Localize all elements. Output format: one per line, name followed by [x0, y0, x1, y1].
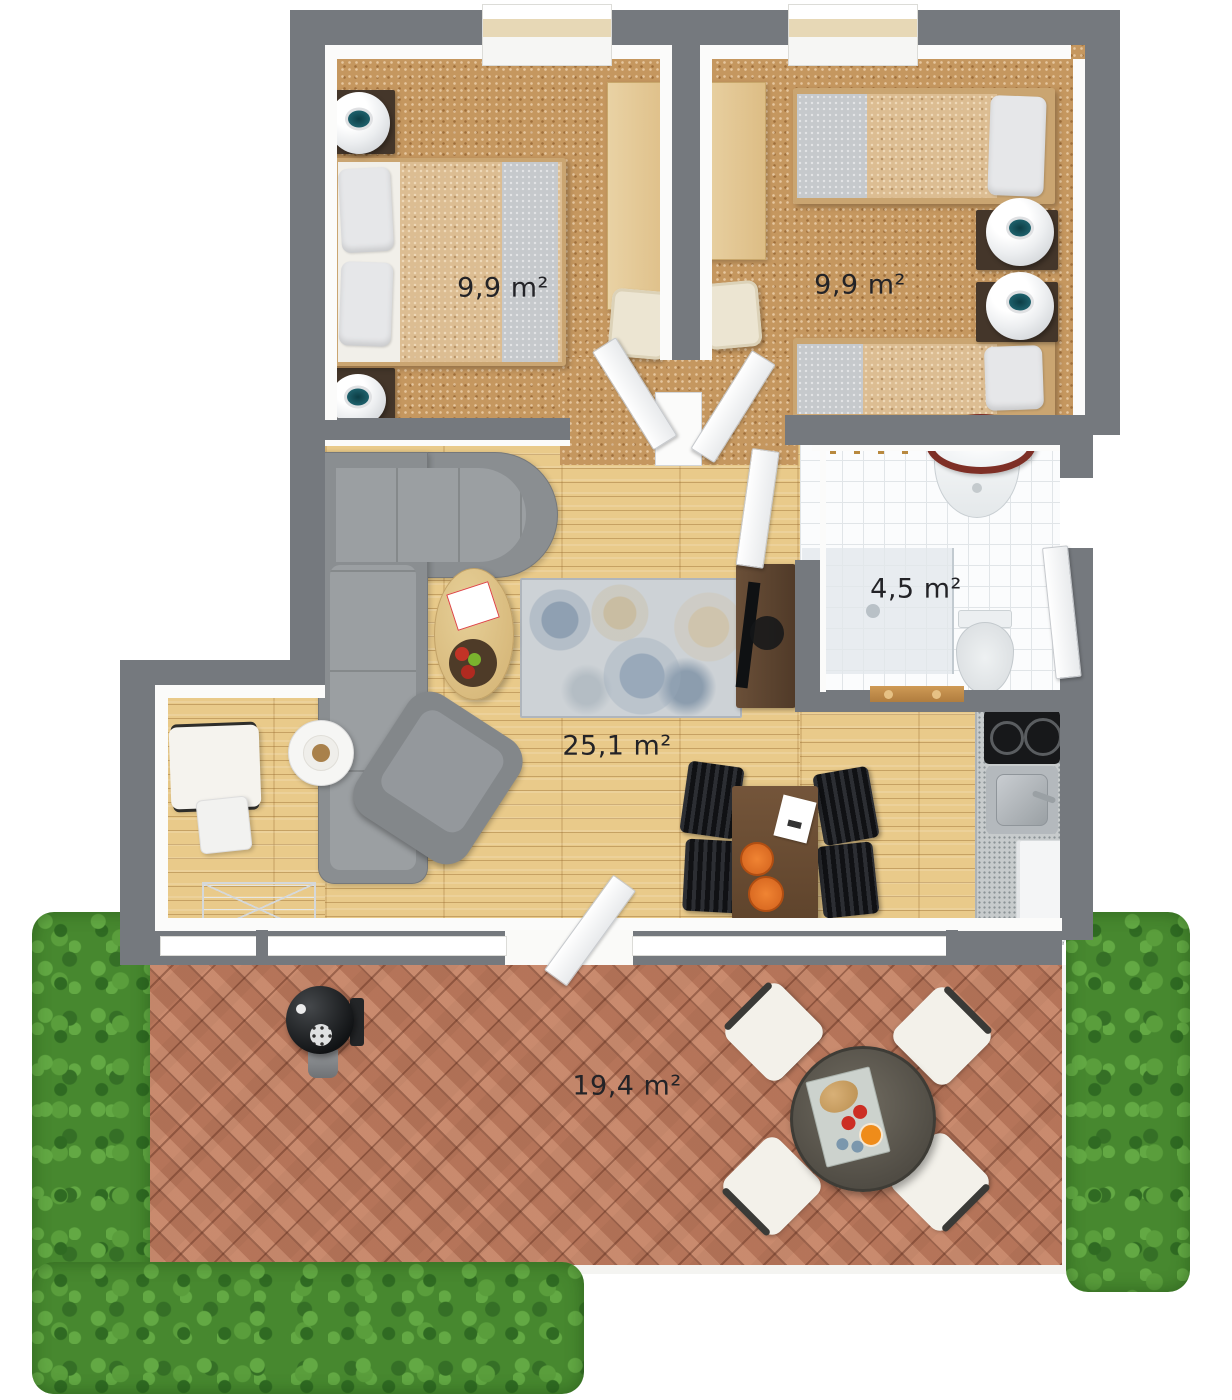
cube-chair — [169, 724, 262, 809]
window — [482, 4, 612, 66]
bbq-grill-base — [308, 1050, 338, 1078]
wall-face — [1073, 59, 1085, 415]
burner — [1024, 718, 1062, 756]
wall-left-upper — [290, 10, 325, 665]
wall-right-mid — [1060, 435, 1093, 478]
wall-top — [290, 10, 1120, 45]
hedge-bottom — [32, 1262, 584, 1394]
bed-runner — [502, 162, 558, 362]
wall-face — [820, 451, 826, 692]
wall-left-wing-side — [120, 660, 155, 935]
wall-face — [325, 59, 337, 420]
bed-runner — [797, 94, 867, 198]
wall-bathroom-left — [795, 560, 820, 692]
floor-plan: 9,9 m² 9,9 m² 4,5 m² 25,1 m² 19,4 m² — [0, 0, 1232, 1400]
area-label-living-room: 25,1 m² — [562, 733, 671, 760]
window-post — [256, 930, 268, 960]
pillow — [338, 167, 394, 254]
lamp-shade-top — [348, 111, 370, 128]
fruit-apple-green — [468, 653, 481, 666]
door-opening — [1060, 478, 1093, 548]
tv-base — [750, 616, 784, 650]
round-table — [288, 720, 354, 786]
window — [788, 4, 918, 66]
bathroom-threshold — [870, 686, 964, 702]
window-post — [946, 930, 958, 960]
lamp-shade-top — [1009, 293, 1031, 310]
window-band — [632, 936, 952, 956]
window-band — [160, 936, 507, 956]
blue-cup — [835, 1137, 850, 1152]
single-bed — [793, 338, 1055, 418]
double-bed — [330, 158, 566, 366]
pillow — [987, 95, 1046, 197]
wall-bedroom-left-bottom — [325, 418, 570, 440]
threshold-knob — [932, 690, 941, 699]
burner — [990, 721, 1024, 755]
fruit-apple-red — [461, 665, 475, 679]
bed-runner — [797, 344, 863, 414]
wall-face — [660, 59, 672, 360]
side-table — [195, 795, 252, 854]
area-label-terrace: 19,4 m² — [572, 1073, 681, 1100]
kitchen-counter — [975, 700, 1064, 945]
area-label-bedroom-left: 9,9 m² — [457, 275, 549, 302]
lamp-shade-top — [1009, 219, 1031, 236]
tv-stand — [736, 564, 796, 708]
pillow — [339, 261, 394, 347]
area-rug — [520, 578, 742, 718]
area-label-bathroom: 4,5 m² — [870, 576, 962, 603]
table-lamp — [986, 198, 1054, 266]
serving-tray — [805, 1066, 890, 1167]
hedge-right — [1066, 912, 1190, 1292]
wall-face — [812, 445, 1060, 451]
wall-face — [155, 685, 168, 930]
wall-face — [700, 59, 712, 360]
pillow — [984, 345, 1044, 411]
table-lamp — [986, 272, 1054, 340]
wall-bedroom-divider — [672, 45, 700, 360]
menu-card — [773, 795, 816, 844]
dining-table — [732, 786, 818, 920]
lamp-shade-top — [347, 388, 369, 405]
bbq-grill-knob — [296, 1004, 306, 1014]
toilet-bowl — [956, 622, 1014, 694]
wall-bathroom-top — [785, 415, 1085, 445]
single-bed — [793, 88, 1055, 204]
coffee-table — [434, 568, 514, 700]
threshold-knob — [884, 690, 893, 699]
plate — [740, 842, 774, 876]
dining-chair — [816, 841, 879, 918]
area-label-bedroom-right: 9,9 m² — [814, 272, 906, 299]
patio-table — [790, 1046, 936, 1192]
wall-right-upper — [1085, 10, 1120, 435]
wall-face — [325, 440, 570, 446]
sofa-cushions — [336, 468, 526, 562]
plate — [748, 876, 784, 912]
bbq-grill-vent — [310, 1024, 332, 1046]
table-lamp — [328, 92, 390, 154]
fruit-apple-red — [455, 647, 469, 661]
magazine — [446, 581, 500, 631]
sink-basin — [996, 774, 1048, 826]
armchair-cushion — [376, 705, 509, 838]
cooktop — [984, 710, 1060, 764]
drain — [972, 483, 982, 493]
kitchen-sink — [986, 766, 1058, 834]
wall-face — [155, 685, 325, 698]
shower-drain — [866, 604, 880, 618]
snack-bowl — [312, 744, 330, 762]
toilet — [952, 610, 1016, 696]
